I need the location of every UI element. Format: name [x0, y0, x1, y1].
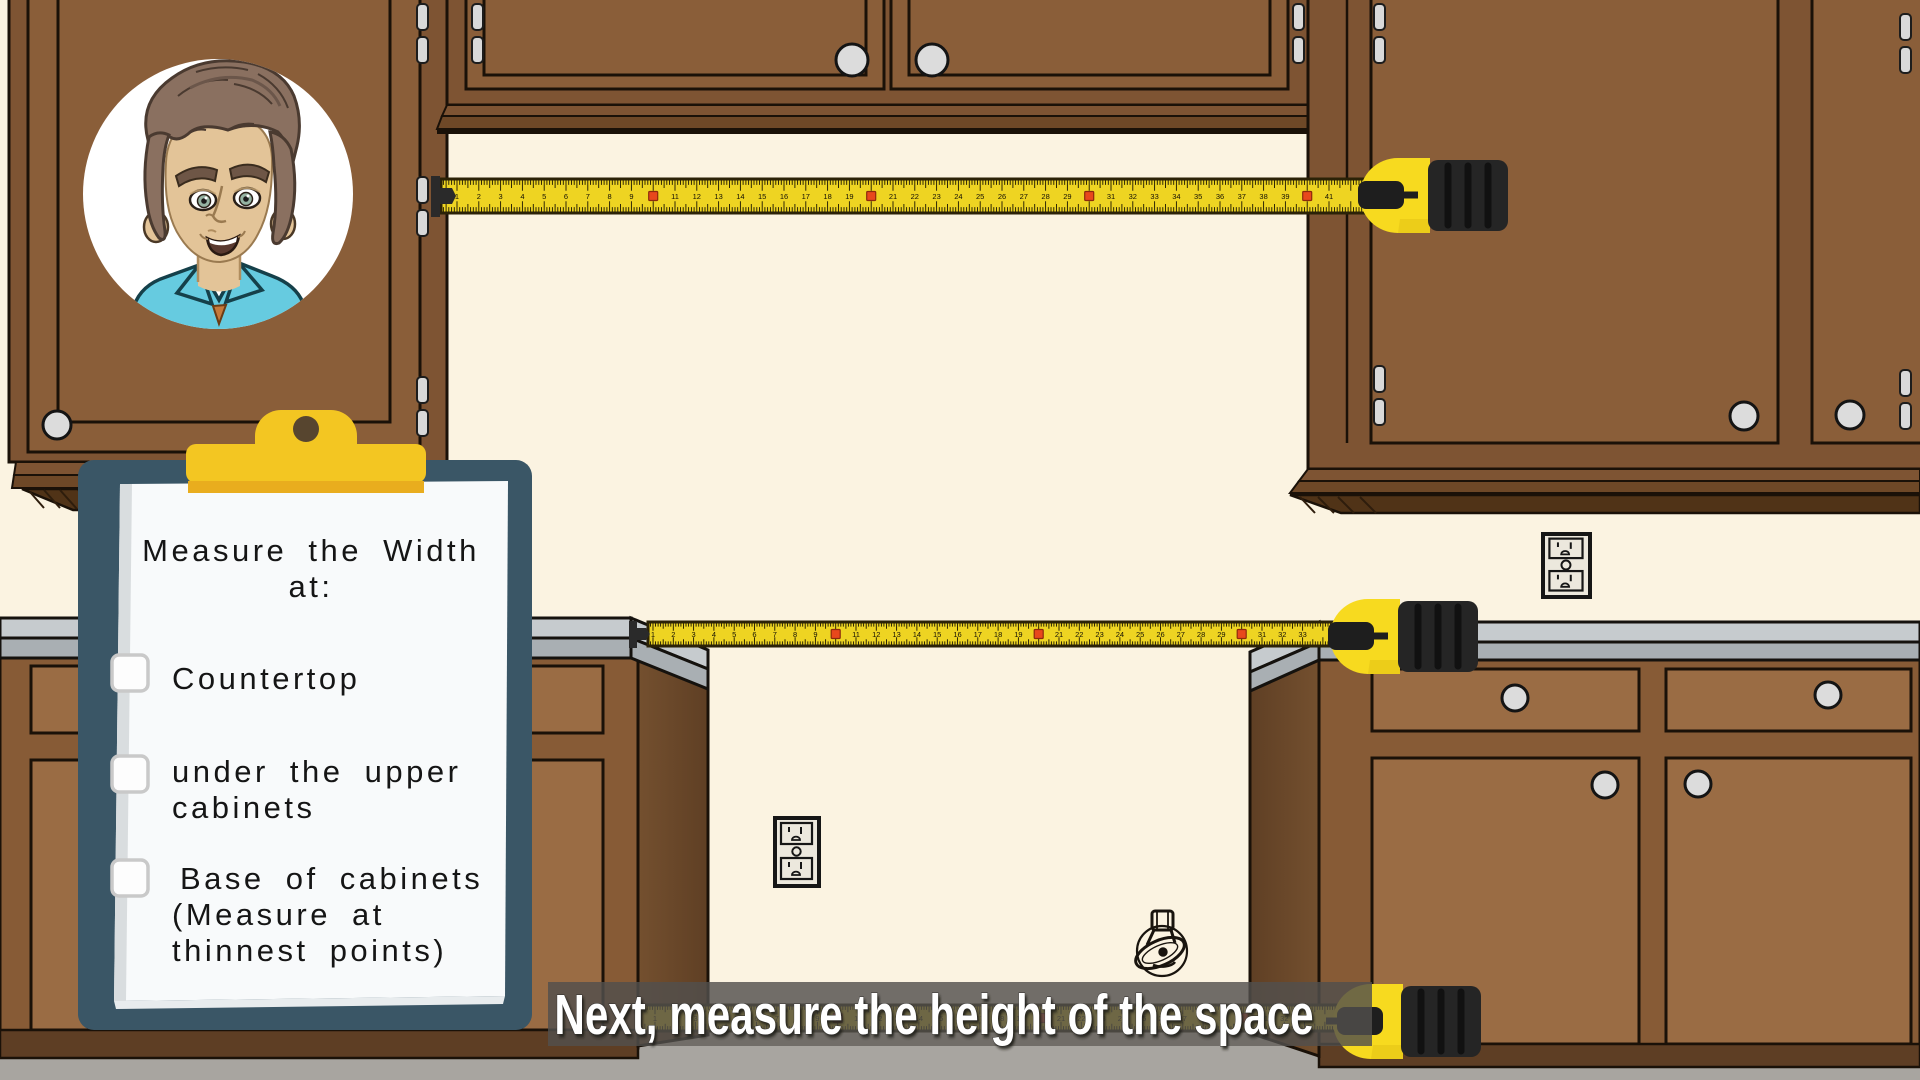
svg-text:12: 12 [693, 192, 701, 201]
svg-text:27: 27 [1177, 630, 1185, 639]
svg-text:14: 14 [736, 192, 744, 201]
svg-text:29: 29 [1217, 630, 1225, 639]
svg-text:27: 27 [1020, 192, 1028, 201]
svg-text:33: 33 [1298, 630, 1306, 639]
svg-text:5: 5 [542, 192, 546, 201]
svg-text:2: 2 [477, 192, 481, 201]
svg-text:21: 21 [1055, 630, 1063, 639]
svg-text:24: 24 [954, 192, 962, 201]
svg-text:Next, measure the height of th: Next, measure the height of the space [554, 983, 1313, 1047]
svg-text:21: 21 [889, 192, 897, 201]
svg-text:25: 25 [1136, 630, 1144, 639]
svg-text:23: 23 [932, 192, 940, 201]
svg-text:16: 16 [780, 192, 788, 201]
svg-text:18: 18 [823, 192, 831, 201]
svg-text:3: 3 [692, 630, 696, 639]
svg-text:17: 17 [974, 630, 982, 639]
svg-text:25: 25 [976, 192, 984, 201]
svg-text:22: 22 [1075, 630, 1083, 639]
svg-text:8: 8 [608, 192, 612, 201]
svg-text:26: 26 [998, 192, 1006, 201]
svg-text:5: 5 [732, 630, 736, 639]
svg-text:14: 14 [913, 630, 921, 639]
svg-text:26: 26 [1156, 630, 1164, 639]
svg-text:29: 29 [1063, 192, 1071, 201]
svg-text:31: 31 [1107, 192, 1115, 201]
svg-text:28: 28 [1197, 630, 1205, 639]
svg-text:Base of cabinets: Base of cabinets [180, 861, 483, 896]
svg-text:6: 6 [752, 630, 756, 639]
svg-text:thinnest points): thinnest points) [172, 933, 447, 968]
svg-text:11: 11 [671, 192, 679, 201]
svg-text:18: 18 [994, 630, 1002, 639]
svg-text:22: 22 [911, 192, 919, 201]
svg-text:31: 31 [1258, 630, 1266, 639]
svg-text:38: 38 [1259, 192, 1267, 201]
svg-text:23: 23 [1095, 630, 1103, 639]
svg-text:6: 6 [564, 192, 568, 201]
svg-text:12: 12 [872, 630, 880, 639]
svg-text:17: 17 [802, 192, 810, 201]
svg-text:cabinets: cabinets [172, 790, 315, 825]
svg-text:24: 24 [1116, 630, 1124, 639]
svg-text:33: 33 [1150, 192, 1158, 201]
svg-text:8: 8 [793, 630, 797, 639]
svg-text:37: 37 [1238, 192, 1246, 201]
svg-text:34: 34 [1172, 192, 1180, 201]
svg-text:7: 7 [773, 630, 777, 639]
svg-text:Countertop: Countertop [172, 661, 360, 696]
svg-text:3: 3 [499, 192, 503, 201]
svg-text:28: 28 [1041, 192, 1049, 201]
svg-text:11: 11 [852, 630, 860, 639]
svg-text:36: 36 [1216, 192, 1224, 201]
svg-text:2: 2 [671, 630, 675, 639]
svg-text:39: 39 [1281, 192, 1289, 201]
svg-text:35: 35 [1194, 192, 1202, 201]
svg-text:7: 7 [586, 192, 590, 201]
svg-text:15: 15 [933, 630, 941, 639]
svg-text:13: 13 [892, 630, 900, 639]
svg-text:41: 41 [1325, 192, 1333, 201]
svg-text:19: 19 [845, 192, 853, 201]
svg-text:19: 19 [1014, 630, 1022, 639]
svg-text:(Measure at: (Measure at [172, 897, 385, 932]
svg-text:9: 9 [629, 192, 633, 201]
svg-text:at:: at: [289, 569, 334, 604]
svg-text:Measure the Width: Measure the Width [142, 533, 480, 568]
svg-text:13: 13 [714, 192, 722, 201]
svg-text:9: 9 [813, 630, 817, 639]
svg-text:32: 32 [1278, 630, 1286, 639]
svg-text:4: 4 [712, 630, 716, 639]
svg-text:under the upper: under the upper [172, 754, 461, 789]
svg-text:4: 4 [520, 192, 524, 201]
svg-text:16: 16 [953, 630, 961, 639]
svg-text:1: 1 [651, 630, 655, 639]
svg-text:32: 32 [1129, 192, 1137, 201]
svg-text:15: 15 [758, 192, 766, 201]
